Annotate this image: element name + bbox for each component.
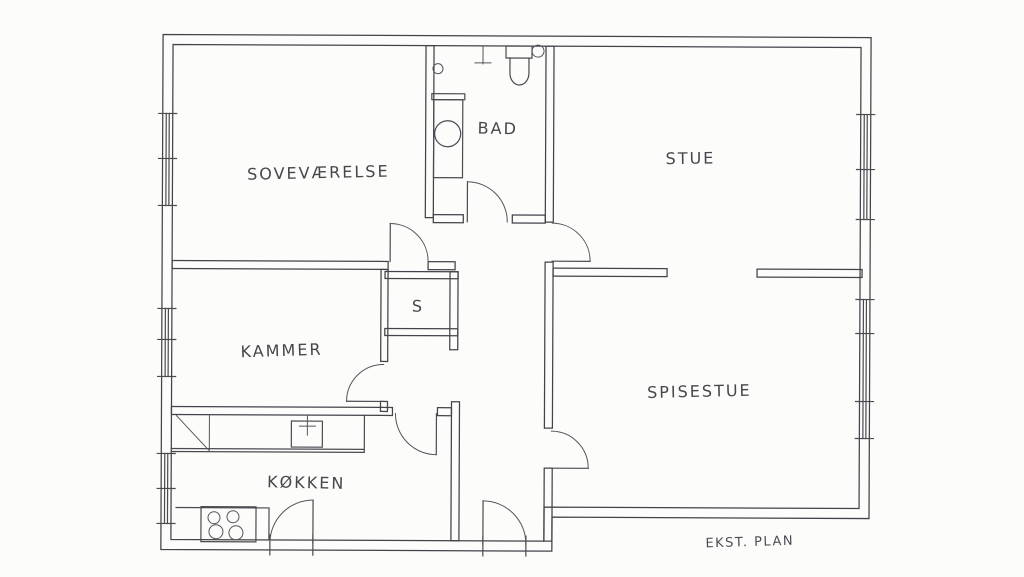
room-label-livingroom: STUE (665, 148, 715, 168)
room-label-bath: BAD (477, 119, 518, 139)
floor-plan-page: SOVEVÆRELSE BAD STUE KAMMER S SPISESTUE … (0, 0, 1024, 577)
room-label-diningroom: SPISESTUE (647, 381, 752, 402)
floor-plan-drawing: SOVEVÆRELSE BAD STUE KAMMER S SPISESTUE … (0, 0, 1024, 577)
room-label-kitchen: KØKKEN (267, 472, 346, 493)
room-label-bedroom: SOVEVÆRELSE (247, 162, 390, 184)
plan-caption: EKST. PLAN (705, 534, 794, 552)
room-label-chamber: KAMMER (240, 340, 323, 361)
room-label-closet: S (412, 297, 424, 316)
